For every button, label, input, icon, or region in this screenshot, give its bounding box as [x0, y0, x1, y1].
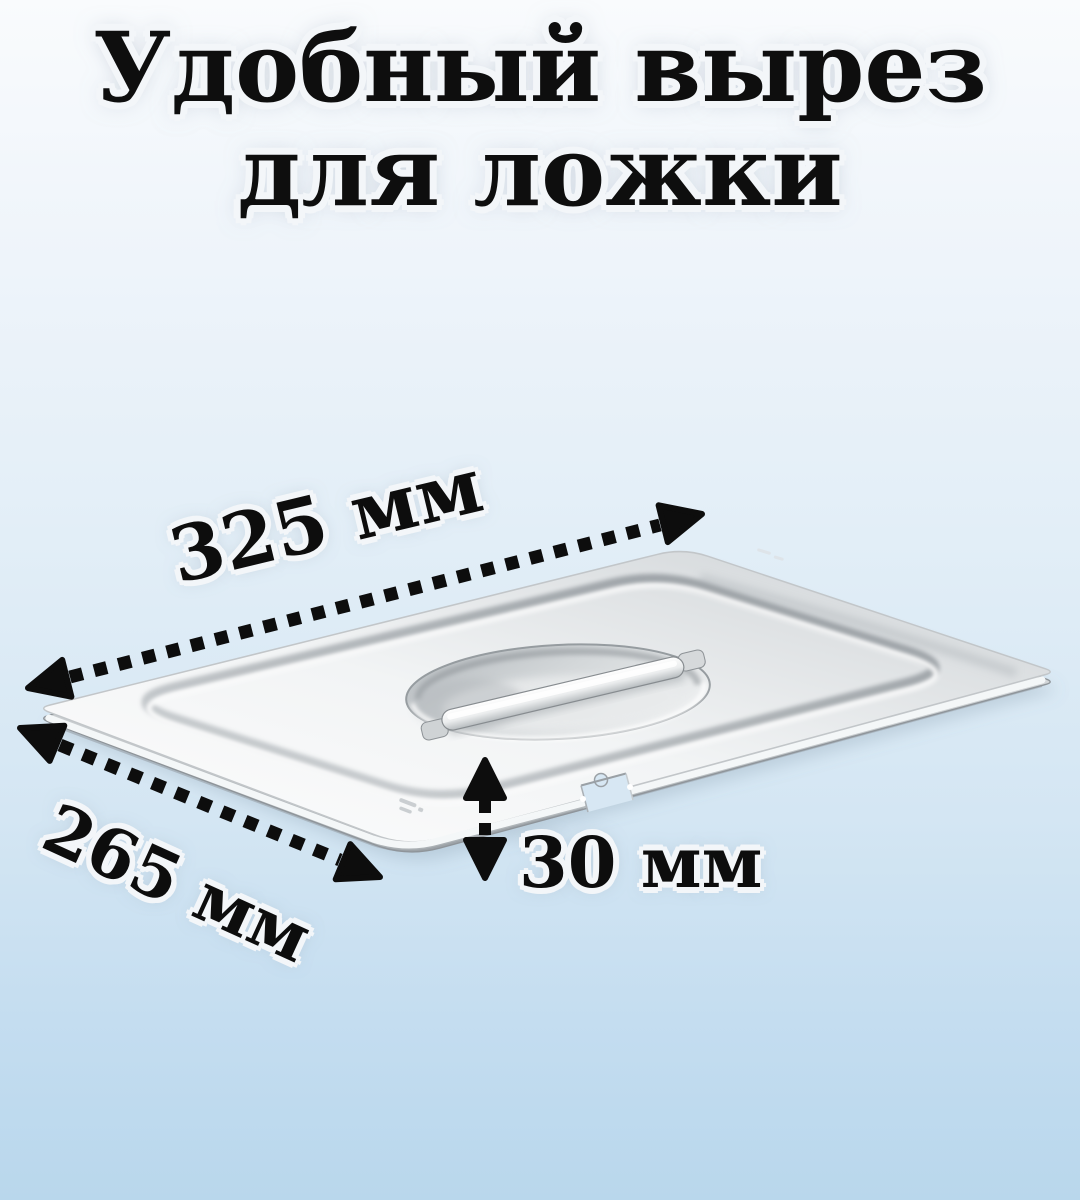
dimension-label-cutout: 30 мм: [519, 828, 762, 898]
page-background: Удобный вырез для ложки: [0, 0, 1080, 1200]
product-photo: [0, 0, 1080, 1200]
